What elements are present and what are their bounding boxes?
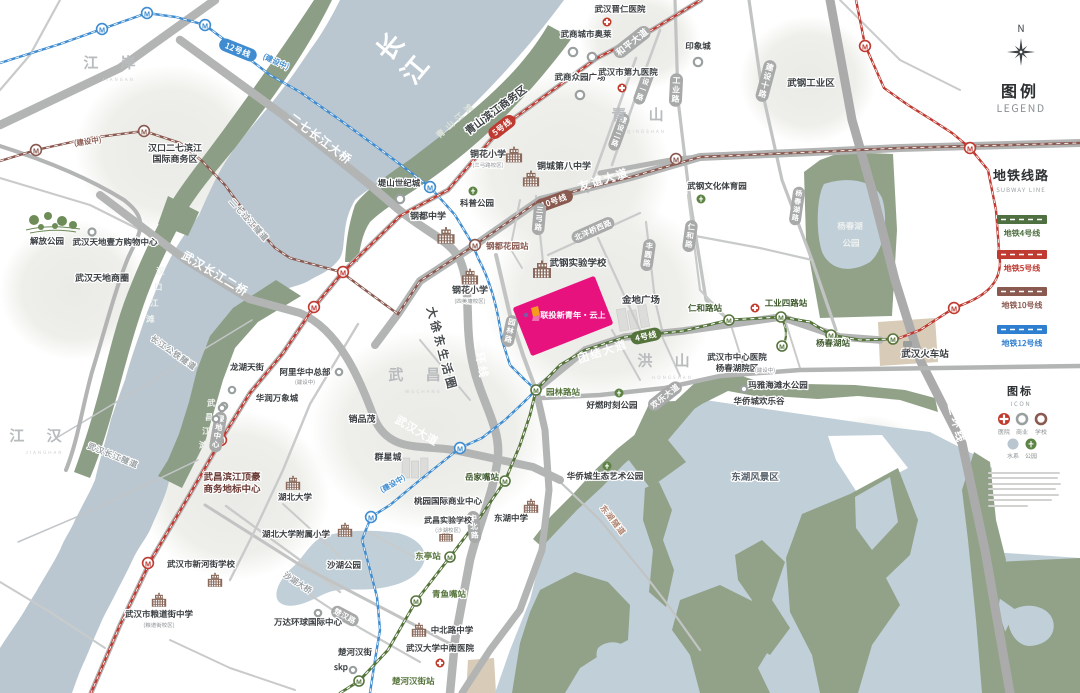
svg-text:滩: 滩 — [146, 313, 155, 325]
svg-text:(粮道街校区): (粮道街校区) — [143, 621, 174, 629]
svg-text:地铁5号线: 地铁5号线 — [1004, 263, 1040, 274]
svg-text:M: M — [726, 315, 732, 325]
svg-text:LEGEND: LEGEND — [996, 101, 1045, 116]
svg-text:WUCHANG: WUCHANG — [405, 389, 441, 395]
svg-text:汉: 汉 — [156, 265, 165, 277]
svg-text:M: M — [99, 25, 105, 35]
svg-text:武汉火车站: 武汉火车站 — [901, 346, 949, 360]
svg-text:沙湖公园: 沙湖公园 — [327, 559, 361, 571]
svg-text:阿里华中总部: 阿里华中总部 — [279, 366, 331, 378]
svg-text:M: M — [890, 334, 896, 344]
svg-text:杨春湖院区: 杨春湖院区 — [716, 362, 759, 374]
svg-text:公园: 公园 — [842, 237, 859, 249]
svg-text:东亭站: 东亭站 — [415, 550, 441, 562]
svg-text:武汉市新河街学校: 武汉市新河街学校 — [167, 558, 236, 570]
svg-text:M: M — [862, 42, 868, 52]
svg-text:(四美塘校区): (四美塘校区) — [454, 297, 485, 305]
svg-text:江 汉: 江 汉 — [9, 425, 70, 446]
svg-text:路: 路 — [471, 530, 480, 542]
svg-text:解放公园: 解放公园 — [29, 235, 64, 247]
svg-text:(建设中): (建设中) — [755, 366, 775, 374]
svg-text:武昌实验学校: 武昌实验学校 — [424, 515, 473, 526]
svg-text:钢都花园站: 钢都花园站 — [486, 240, 529, 252]
svg-text:杨春湖站: 杨春湖站 — [816, 337, 851, 349]
svg-text:JIANGHAN: JIANGHAN — [26, 450, 64, 456]
svg-text:口: 口 — [154, 281, 163, 293]
svg-text:医院: 医院 — [998, 427, 1010, 436]
svg-text:M: M — [340, 268, 346, 278]
svg-text:商务地标中心: 商务地标中心 — [203, 481, 261, 495]
svg-text:M: M — [472, 241, 478, 251]
svg-text:江: 江 — [150, 297, 159, 309]
svg-text:HONGSHAN: HONGSHAN — [652, 375, 693, 381]
svg-text:水系: 水系 — [1007, 451, 1019, 460]
svg-text:地铁10号线: 地铁10号线 — [1002, 300, 1043, 311]
svg-text:钢都中学: 钢都中学 — [410, 209, 446, 222]
svg-text:青鱼嘴站: 青鱼嘴站 — [432, 588, 467, 600]
svg-text:N: N — [1017, 20, 1024, 35]
svg-text:销品茂: 销品茂 — [348, 412, 375, 425]
svg-text:铜城第八中学: 铜城第八中学 — [537, 159, 591, 172]
svg-text:M: M — [202, 21, 208, 31]
svg-text:工业四路站: 工业四路站 — [765, 297, 808, 309]
svg-text:QINGSHAN: QINGSHAN — [627, 129, 666, 135]
svg-text:仁和路站: 仁和路站 — [688, 302, 723, 314]
svg-text:联投新青年·云上: 联投新青年·云上 — [540, 309, 606, 321]
svg-text:M: M — [447, 552, 453, 562]
svg-text:skp: skp — [334, 661, 348, 673]
svg-text:武钢文化体育园: 武钢文化体育园 — [687, 180, 747, 192]
svg-text:M: M — [144, 9, 150, 19]
svg-text:江: 江 — [202, 425, 211, 437]
svg-text:龙湖天街: 龙湖天街 — [229, 361, 265, 373]
svg-text:M: M — [951, 304, 957, 314]
svg-text:洪 山: 洪 山 — [637, 350, 698, 371]
svg-text:M: M — [502, 476, 508, 486]
svg-text:杨春湖: 杨春湖 — [837, 220, 863, 232]
svg-text:M: M — [533, 385, 539, 395]
svg-text:M: M — [368, 513, 374, 523]
svg-text:武: 武 — [207, 397, 216, 409]
svg-text:JIANGAN: JIANGAN — [102, 77, 135, 83]
svg-text:金地广场: 金地广场 — [621, 292, 661, 306]
svg-text:楚河汉街: 楚河汉街 — [337, 646, 373, 658]
svg-text:M: M — [673, 155, 679, 165]
svg-text:华润万象城: 华润万象城 — [256, 392, 299, 404]
svg-text:武钢实验学校: 武钢实验学校 — [549, 255, 607, 269]
svg-text:滩: 滩 — [199, 439, 208, 451]
svg-text:学校: 学校 — [1035, 427, 1047, 436]
svg-text:M: M — [356, 676, 362, 686]
svg-text:SUBWAY LINE: SUBWAY LINE — [996, 185, 1046, 194]
svg-text:M: M — [311, 303, 317, 313]
svg-text:M: M — [427, 183, 433, 193]
svg-text:铜花小学: 铜花小学 — [470, 147, 506, 160]
svg-text:东湖风景区: 东湖风景区 — [731, 469, 779, 483]
svg-text:(沙湖校区): (沙湖校区) — [435, 526, 461, 534]
svg-text:武商城市奥莱: 武商城市奥莱 — [560, 28, 612, 40]
svg-text:钢花小学: 钢花小学 — [452, 283, 488, 296]
svg-text:楚河汉街站: 楚河汉街站 — [391, 675, 435, 687]
svg-text:华侨城生态艺术公园: 华侨城生态艺术公园 — [567, 470, 644, 482]
svg-text:武汉市粮道街中学: 武汉市粮道街中学 — [125, 608, 194, 620]
svg-text:M: M — [967, 144, 973, 154]
svg-text:玛雅海滩水公园: 玛雅海滩水公园 — [748, 379, 808, 391]
svg-text:国际商务区: 国际商务区 — [152, 152, 197, 165]
svg-text:路: 路 — [534, 222, 543, 234]
svg-text:M: M — [141, 127, 147, 137]
svg-text:湖北大学: 湖北大学 — [278, 491, 313, 503]
svg-text:桃园国际商业中心: 桃园国际商业中心 — [414, 495, 483, 507]
svg-text:M: M — [33, 146, 39, 156]
svg-text:M: M — [413, 596, 419, 606]
svg-text:园林路站: 园林路站 — [546, 386, 581, 398]
svg-text:武汉大学中南医院: 武汉大学中南医院 — [406, 642, 475, 654]
svg-text:堤山世纪城: 堤山世纪城 — [378, 177, 421, 189]
svg-text:湖北大学附属小学: 湖北大学附属小学 — [262, 528, 331, 540]
svg-text:(三弓路校区): (三弓路校区) — [472, 161, 503, 169]
svg-text:地铁4号线: 地铁4号线 — [1004, 228, 1040, 239]
svg-text:M: M — [778, 312, 784, 322]
svg-text:武汉天地壹方购物中心: 武汉天地壹方购物中心 — [72, 236, 158, 248]
svg-text:M: M — [457, 444, 463, 454]
svg-text:地铁12号线: 地铁12号线 — [1002, 338, 1043, 349]
svg-text:武汉天地商圈: 武汉天地商圈 — [75, 271, 129, 284]
svg-text:群星城: 群星城 — [373, 450, 401, 463]
svg-text:中北路中学: 中北路中学 — [431, 624, 474, 636]
svg-text:地铁线路: 地铁线路 — [993, 165, 1049, 184]
svg-text:武汉市第九医院: 武汉市第九医院 — [598, 66, 658, 78]
svg-text:岳家嘴站: 岳家嘴站 — [465, 471, 500, 483]
svg-text:东湖中学: 东湖中学 — [494, 512, 529, 524]
svg-text:图例: 图例 — [1001, 78, 1039, 102]
svg-text:(建设中): (建设中) — [295, 378, 315, 386]
svg-text:商业: 商业 — [1016, 427, 1028, 436]
svg-text:江 岸: 江 岸 — [83, 52, 144, 73]
svg-text:科普公园: 科普公园 — [460, 197, 494, 209]
svg-text:武汉晋仁医院: 武汉晋仁医院 — [594, 3, 646, 15]
svg-text:印象城: 印象城 — [685, 40, 711, 52]
svg-text:好燃时刻公园: 好燃时刻公园 — [585, 399, 637, 411]
svg-text:M: M — [145, 559, 151, 569]
svg-text:华侨城欢乐谷: 华侨城欢乐谷 — [733, 395, 785, 407]
svg-text:公园: 公园 — [1025, 451, 1037, 460]
svg-text:青 山: 青 山 — [611, 104, 672, 125]
svg-text:M: M — [779, 341, 785, 351]
svg-text:万达环球国际中心: 万达环球国际中心 — [273, 616, 343, 628]
svg-text:ICON: ICON — [1011, 399, 1031, 408]
svg-text:武钢工业区: 武钢工业区 — [787, 75, 835, 89]
svg-text:图标: 图标 — [1007, 383, 1033, 399]
